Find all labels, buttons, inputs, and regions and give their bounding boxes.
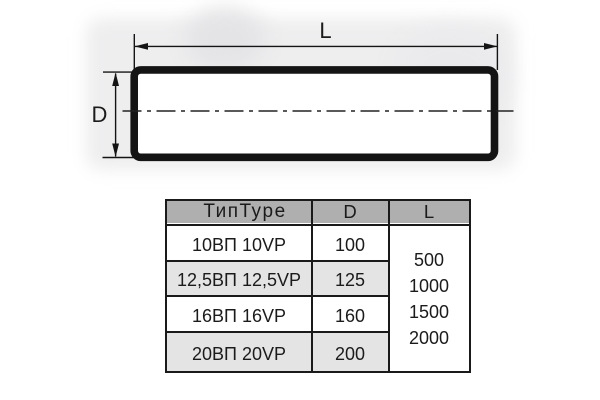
svg-text:L: L <box>319 18 331 43</box>
svg-text:D: D <box>92 102 108 127</box>
